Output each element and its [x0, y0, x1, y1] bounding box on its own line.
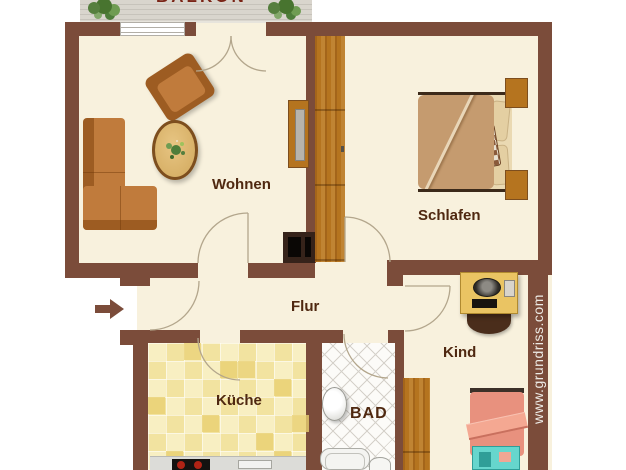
- wall-top-a: [65, 22, 120, 36]
- pc-tower-icon: [504, 280, 515, 297]
- room-label-bad: BAD: [350, 405, 388, 423]
- nightstand: [505, 78, 528, 108]
- bathtub: [320, 448, 370, 470]
- balcony: BALKON: [80, 0, 312, 23]
- keyboard-icon: [472, 299, 497, 308]
- nightstand: [505, 170, 528, 200]
- floor-plan: BALKON: [0, 0, 626, 470]
- room-label-wohnen: Wohnen: [212, 176, 271, 193]
- wall-left: [65, 22, 79, 278]
- wall-kitchen-left: [133, 330, 148, 470]
- wardrobe: [403, 378, 430, 470]
- kitchen-sink: [238, 460, 272, 469]
- monitor-icon: [473, 278, 501, 297]
- wall-kind-stub: [387, 260, 403, 286]
- sofa-corner: [83, 186, 157, 230]
- wall-entry-stub: [120, 276, 150, 286]
- toy-box: [472, 446, 520, 470]
- room-label-flur: Flur: [291, 298, 319, 315]
- living-room-window: [120, 22, 185, 36]
- room-label-kind: Kind: [443, 344, 476, 361]
- room-label-schlafen: Schlafen: [418, 207, 481, 224]
- wall-living-bottom-b: [248, 263, 315, 278]
- wall-top-bedroom: [313, 22, 552, 36]
- desk: [460, 272, 518, 314]
- outside-area: [0, 278, 137, 470]
- room-label-kueche: Küche: [216, 392, 262, 409]
- wall-kitchen-top-b: [240, 330, 322, 343]
- child-bed: [470, 388, 524, 470]
- coffee-table: [152, 120, 198, 180]
- wall-bath-top-left: [322, 330, 343, 343]
- plant-icon: [88, 2, 100, 14]
- sideboard: [288, 100, 309, 168]
- burner-icon: [194, 461, 202, 469]
- bathroom-sink: [322, 387, 347, 421]
- toilet: [369, 457, 391, 470]
- burner-icon: [177, 461, 185, 469]
- wall-kitchen-bath: [306, 343, 322, 470]
- balcony-label: BALKON: [156, 0, 247, 7]
- wall-top-b: [185, 22, 196, 36]
- tv-cabinet: [283, 232, 315, 263]
- wall-kitchen-top-a: [148, 330, 200, 343]
- wardrobe-handle: [341, 146, 344, 152]
- watermark: www.grundriss.com: [530, 294, 546, 424]
- wall-right-upper: [538, 22, 552, 275]
- plant-icon: [268, 2, 280, 14]
- table-plant: [171, 145, 181, 155]
- double-bed: [418, 92, 514, 192]
